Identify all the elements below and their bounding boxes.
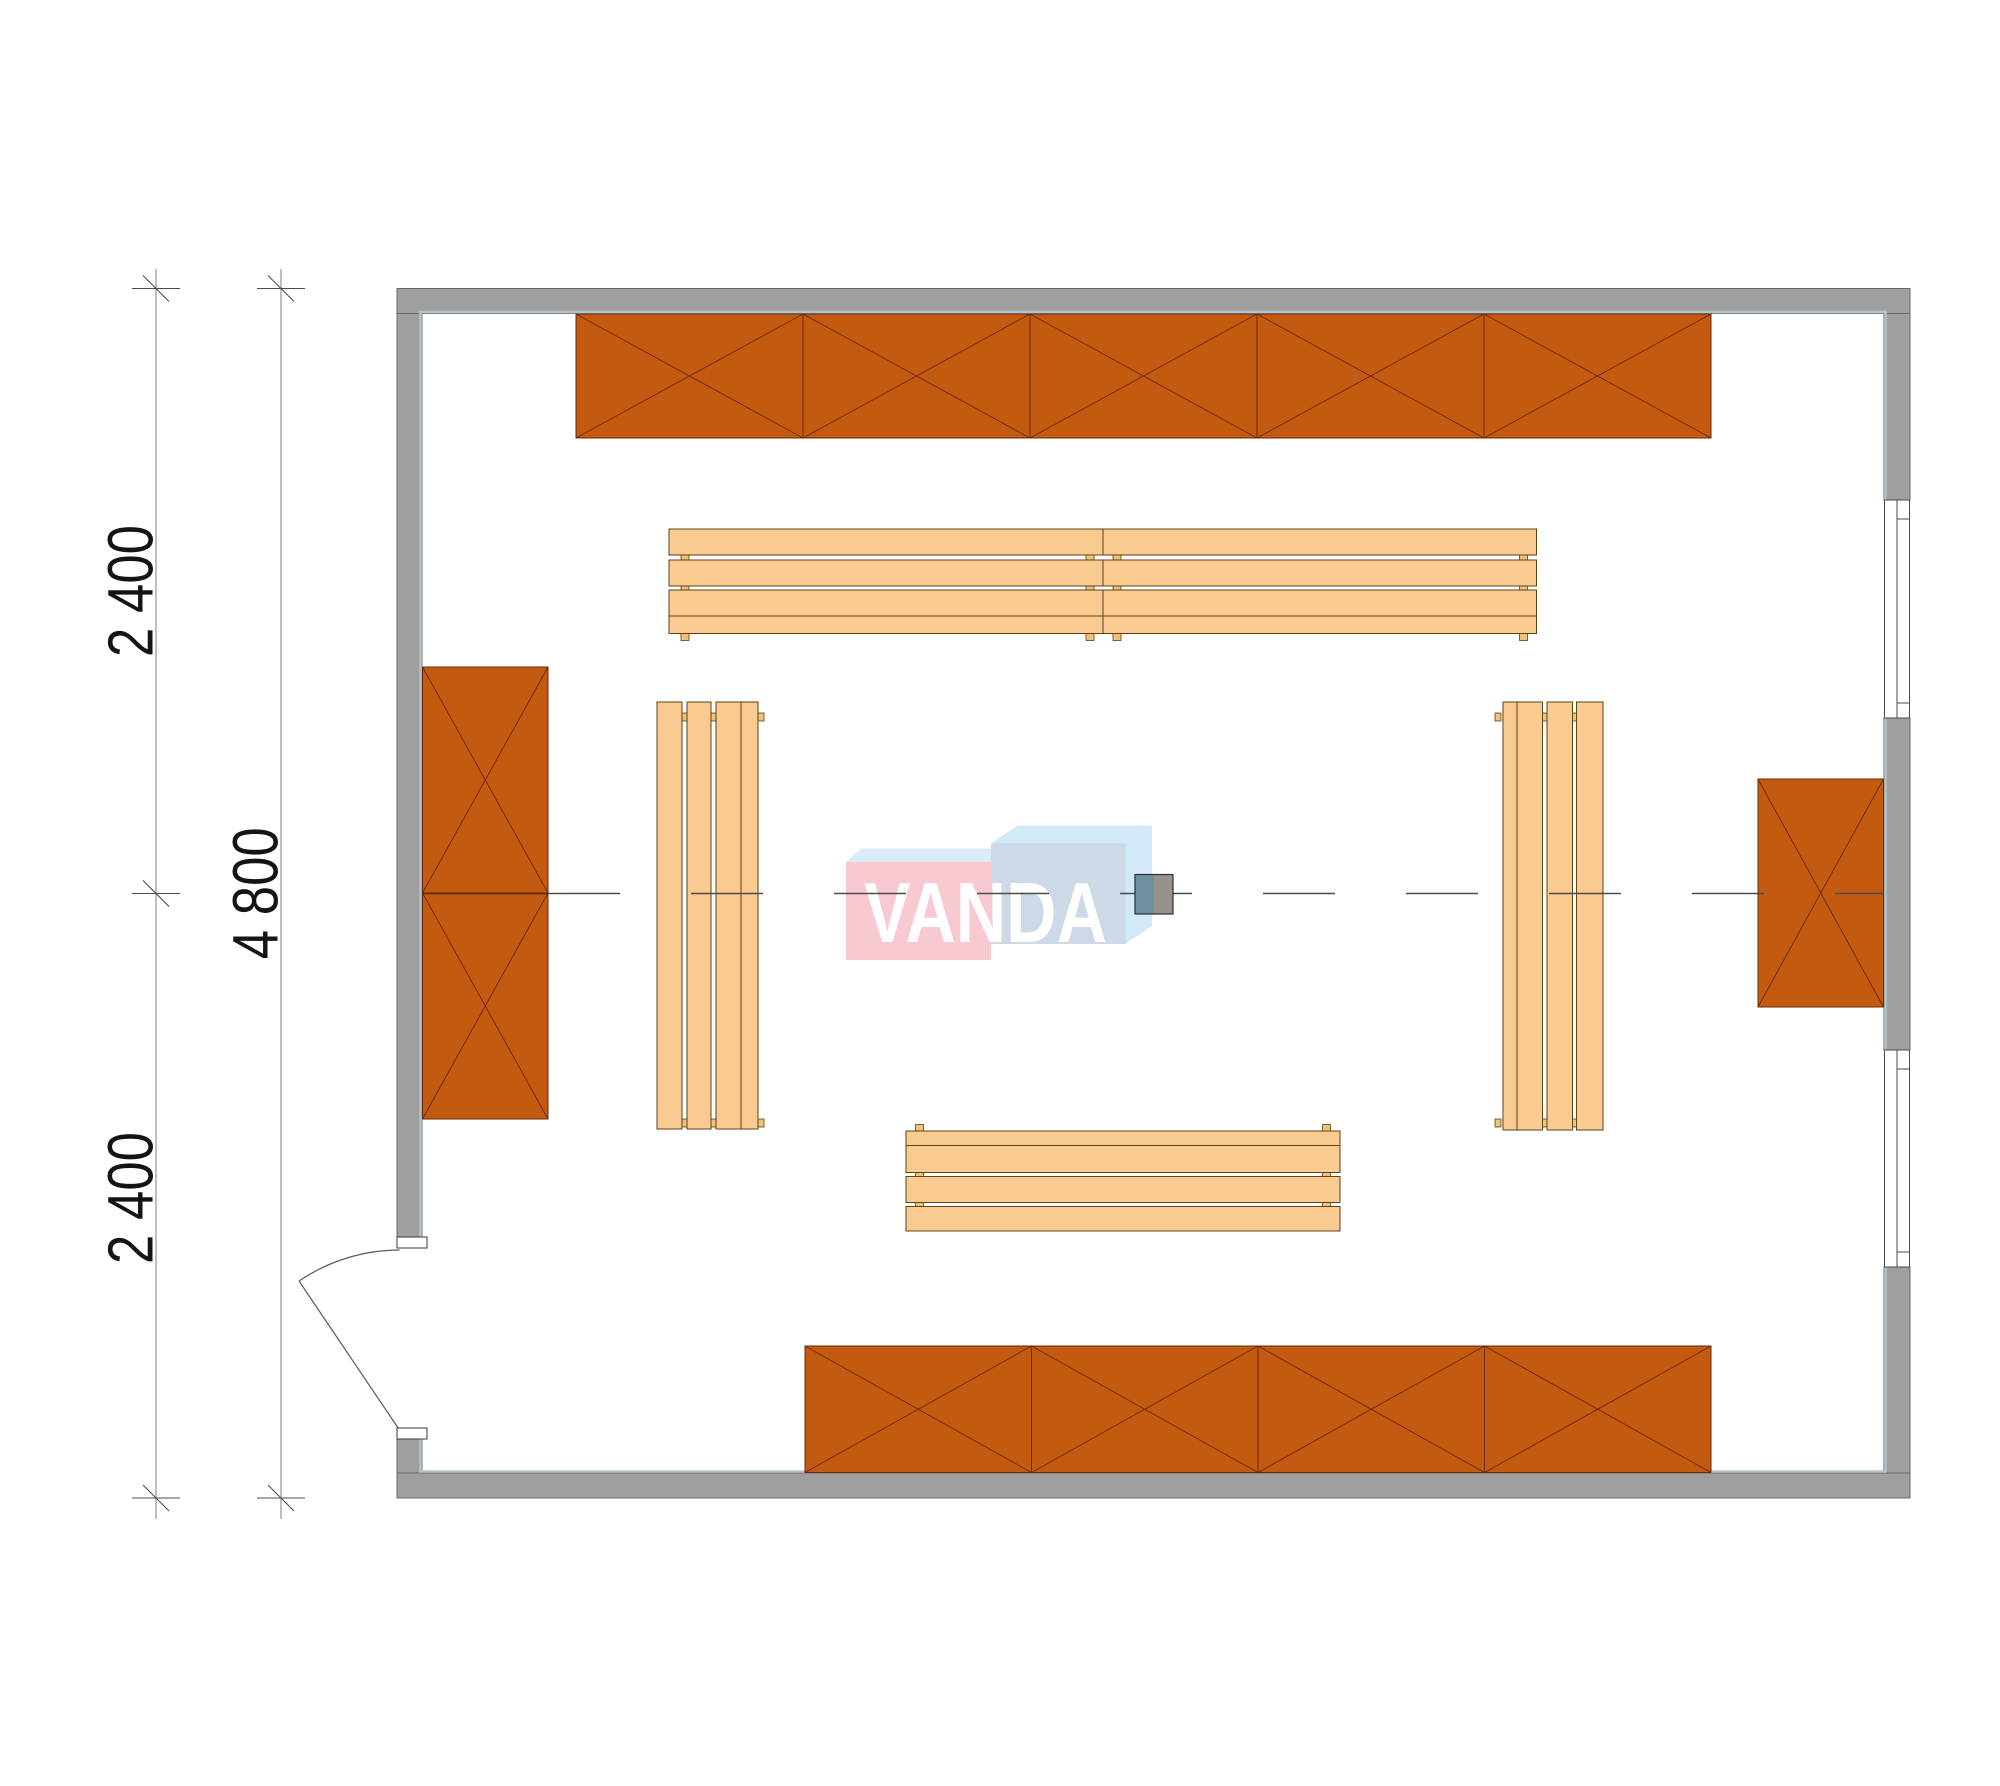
svg-text:VANDA: VANDA: [864, 866, 1107, 961]
svg-text:2 400: 2 400: [95, 1132, 167, 1264]
svg-text:4 800: 4 800: [220, 827, 292, 959]
svg-text:2 400: 2 400: [95, 525, 167, 657]
